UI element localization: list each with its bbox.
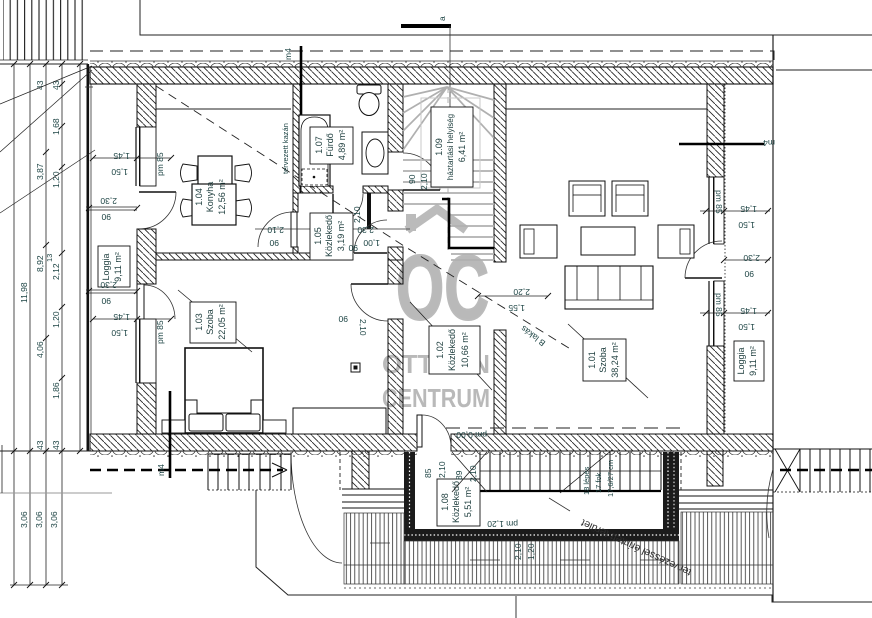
svg-text:90: 90 bbox=[269, 238, 279, 248]
svg-text:1,86: 1,86 bbox=[51, 382, 61, 399]
svg-text:Közlekedő: Közlekedő bbox=[324, 215, 334, 257]
svg-text:18 lépés: 18 lépés bbox=[582, 466, 591, 495]
svg-text:2,10: 2,10 bbox=[437, 461, 447, 478]
svg-text:5,51 m²: 5,51 m² bbox=[463, 487, 473, 518]
svg-text:1.03: 1.03 bbox=[194, 313, 204, 331]
svg-text:2,30: 2,30 bbox=[100, 280, 117, 290]
svg-text:3,06: 3,06 bbox=[19, 511, 29, 528]
svg-text:2,20: 2,20 bbox=[513, 287, 530, 297]
svg-text:1,50: 1,50 bbox=[738, 220, 755, 230]
svg-text:2,12: 2,12 bbox=[51, 263, 61, 280]
svg-text:2,10: 2,10 bbox=[419, 173, 429, 190]
svg-text:6,41 m²: 6,41 m² bbox=[457, 132, 467, 163]
svg-text:17,6/27 cm: 17,6/27 cm bbox=[606, 460, 615, 497]
svg-text:12,56 m²: 12,56 m² bbox=[217, 179, 227, 215]
svg-text:22,05 m²: 22,05 m² bbox=[217, 304, 227, 340]
svg-text:10,66 m²: 10,66 m² bbox=[460, 332, 470, 368]
svg-text:1,50: 1,50 bbox=[738, 322, 755, 332]
svg-text:Loggia: Loggia bbox=[101, 253, 111, 280]
svg-text:9,11 m²: 9,11 m² bbox=[113, 252, 123, 282]
svg-text:9,11 m²: 9,11 m² bbox=[748, 346, 758, 376]
svg-text:13: 13 bbox=[45, 254, 54, 262]
svg-text:Loggia: Loggia bbox=[736, 347, 746, 374]
svg-text:1.07: 1.07 bbox=[314, 136, 324, 154]
svg-text:4,89 m²: 4,89 m² bbox=[337, 130, 347, 161]
svg-text:2,10: 2,10 bbox=[358, 319, 368, 336]
svg-text:1.08: 1.08 bbox=[440, 493, 450, 511]
svg-text:17 fok: 17 fok bbox=[594, 472, 603, 493]
svg-text:1,00: 1,00 bbox=[363, 238, 380, 248]
svg-text:1.05: 1.05 bbox=[313, 227, 323, 245]
svg-text:85: 85 bbox=[423, 468, 433, 478]
svg-text:pm 85: pm 85 bbox=[714, 190, 724, 214]
svg-text:2,30: 2,30 bbox=[100, 196, 117, 206]
svg-text:1.02: 1.02 bbox=[435, 341, 445, 359]
svg-text:2,30: 2,30 bbox=[743, 253, 760, 263]
svg-text:Fürdő: Fürdő bbox=[325, 133, 335, 157]
svg-text:Közlekedő: Közlekedő bbox=[447, 329, 457, 371]
svg-text:90: 90 bbox=[338, 314, 348, 324]
svg-text:1,45: 1,45 bbox=[740, 204, 757, 214]
svg-text:3,87: 3,87 bbox=[35, 163, 45, 180]
svg-text:2,30: 2,30 bbox=[357, 225, 374, 235]
svg-text:11,98: 11,98 bbox=[19, 282, 29, 303]
svg-text:1,45: 1,45 bbox=[740, 306, 757, 316]
svg-text:8,92: 8,92 bbox=[35, 255, 45, 272]
svg-text:43: 43 bbox=[51, 440, 61, 450]
svg-text:pm 85: pm 85 bbox=[155, 320, 165, 344]
svg-text:1,20: 1,20 bbox=[51, 311, 61, 328]
svg-text:2,10: 2,10 bbox=[468, 465, 478, 482]
svg-text:43: 43 bbox=[51, 80, 61, 90]
svg-text:Konyha: Konyha bbox=[205, 182, 215, 213]
svg-text:pm 1,20: pm 1,20 bbox=[487, 519, 518, 529]
svg-text:pm 85: pm 85 bbox=[155, 152, 165, 176]
svg-text:m4: m4 bbox=[763, 138, 775, 148]
svg-text:3,06: 3,06 bbox=[34, 511, 44, 528]
svg-text:2,10: 2,10 bbox=[267, 225, 284, 235]
svg-text:1,55: 1,55 bbox=[508, 303, 525, 313]
svg-text:3,19 m²: 3,19 m² bbox=[336, 221, 346, 252]
svg-text:90: 90 bbox=[348, 243, 358, 253]
svg-text:89: 89 bbox=[454, 470, 464, 480]
svg-text:1,50: 1,50 bbox=[111, 328, 128, 338]
svg-text:OC: OC bbox=[396, 237, 489, 339]
svg-text:háztartási helyiség: háztartási helyiség bbox=[446, 114, 455, 180]
svg-text:4,06: 4,06 bbox=[35, 341, 45, 358]
svg-text:43: 43 bbox=[35, 440, 45, 450]
svg-text:2,10: 2,10 bbox=[352, 206, 362, 223]
svg-text:1,50: 1,50 bbox=[111, 167, 128, 177]
svg-text:1.09: 1.09 bbox=[434, 138, 444, 156]
svg-text:90: 90 bbox=[101, 296, 111, 306]
svg-text:1,45: 1,45 bbox=[113, 312, 130, 322]
svg-text:1,68: 1,68 bbox=[51, 118, 61, 135]
svg-text:90: 90 bbox=[101, 212, 111, 222]
svg-text:Szoba: Szoba bbox=[598, 347, 608, 373]
svg-text:m4: m4 bbox=[283, 48, 293, 60]
svg-text:90: 90 bbox=[407, 174, 417, 184]
svg-text:3,06: 3,06 bbox=[49, 511, 59, 528]
svg-text:pm 0,00: pm 0,00 bbox=[456, 430, 487, 440]
svg-text:a: a bbox=[437, 16, 447, 21]
svg-text:tervezett kazán: tervezett kazán bbox=[281, 123, 290, 174]
svg-text:m4: m4 bbox=[156, 464, 166, 476]
svg-text:43: 43 bbox=[35, 80, 45, 90]
svg-text:38,24 m²: 38,24 m² bbox=[610, 342, 620, 378]
svg-text:1,45: 1,45 bbox=[113, 151, 130, 161]
svg-text:1.01: 1.01 bbox=[587, 351, 597, 369]
svg-text:pm 85: pm 85 bbox=[714, 293, 724, 317]
svg-text:Szoba: Szoba bbox=[205, 309, 215, 335]
svg-text:1.04: 1.04 bbox=[194, 188, 204, 206]
svg-text:90: 90 bbox=[744, 269, 754, 279]
